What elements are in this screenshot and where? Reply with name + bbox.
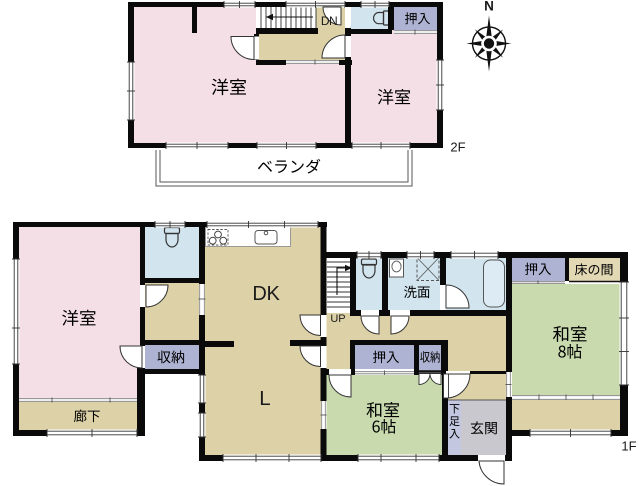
- svg-text:N: N: [484, 0, 494, 14]
- svg-text:DN: DN: [321, 14, 337, 28]
- svg-text:1F: 1F: [621, 439, 636, 454]
- svg-text:2F: 2F: [450, 140, 465, 155]
- svg-text:L: L: [259, 387, 270, 410]
- svg-text:UP: UP: [330, 313, 345, 325]
- svg-text:DK: DK: [252, 283, 280, 305]
